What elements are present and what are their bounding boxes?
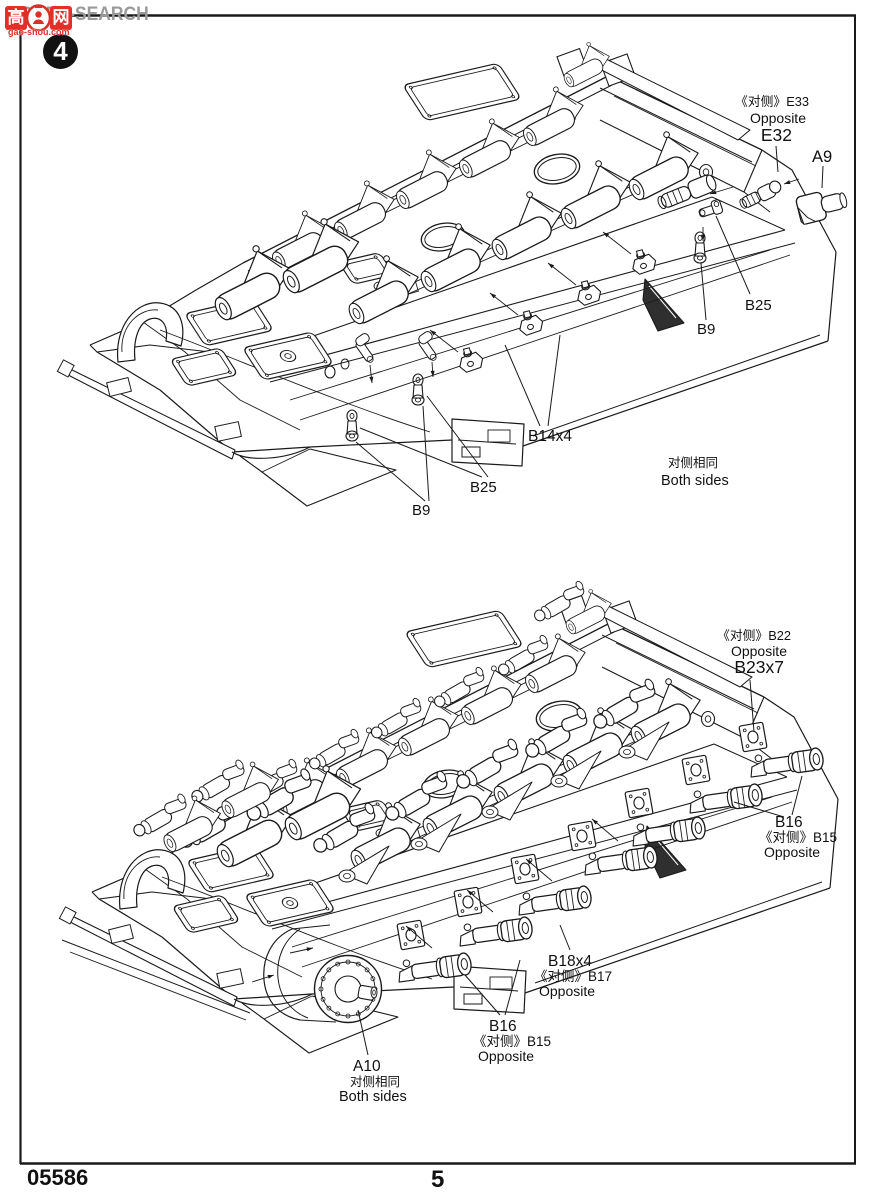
svg-text:《对侧》B15: 《对侧》B15 (473, 1034, 551, 1049)
svg-text:《对侧》B22: 《对侧》B22 (717, 628, 791, 643)
svg-text:B9: B9 (412, 502, 430, 519)
svg-text:《对侧》B15: 《对侧》B15 (759, 830, 837, 845)
svg-text:B14x4: B14x4 (528, 428, 572, 445)
svg-text:Opposite: Opposite (478, 1048, 534, 1064)
svg-text:5: 5 (431, 1166, 444, 1193)
svg-text:B9: B9 (697, 321, 715, 338)
svg-text:B16: B16 (775, 814, 803, 831)
svg-text:Opposite: Opposite (750, 110, 806, 126)
svg-text:B23x7: B23x7 (734, 657, 784, 677)
svg-text:《对侧》B17: 《对侧》B17 (534, 969, 612, 984)
svg-text:Opposite: Opposite (539, 983, 595, 999)
svg-text:A10: A10 (353, 1058, 381, 1075)
svg-text:A9: A9 (812, 148, 832, 166)
svg-text:Both sides: Both sides (661, 473, 729, 489)
svg-text:B25: B25 (470, 479, 497, 496)
svg-text:Both sides: Both sides (339, 1089, 407, 1105)
svg-text:B16: B16 (489, 1018, 517, 1035)
svg-text:B25: B25 (745, 297, 772, 314)
svg-text:B18x4: B18x4 (548, 953, 592, 970)
svg-text:E32: E32 (761, 125, 792, 145)
svg-text:对侧相同: 对侧相同 (350, 1075, 400, 1089)
svg-text:《对侧》E33: 《对侧》E33 (735, 94, 809, 109)
svg-text:对侧相同: 对侧相同 (668, 456, 718, 470)
svg-text:05586: 05586 (27, 1165, 88, 1190)
svg-text:Opposite: Opposite (764, 844, 820, 860)
